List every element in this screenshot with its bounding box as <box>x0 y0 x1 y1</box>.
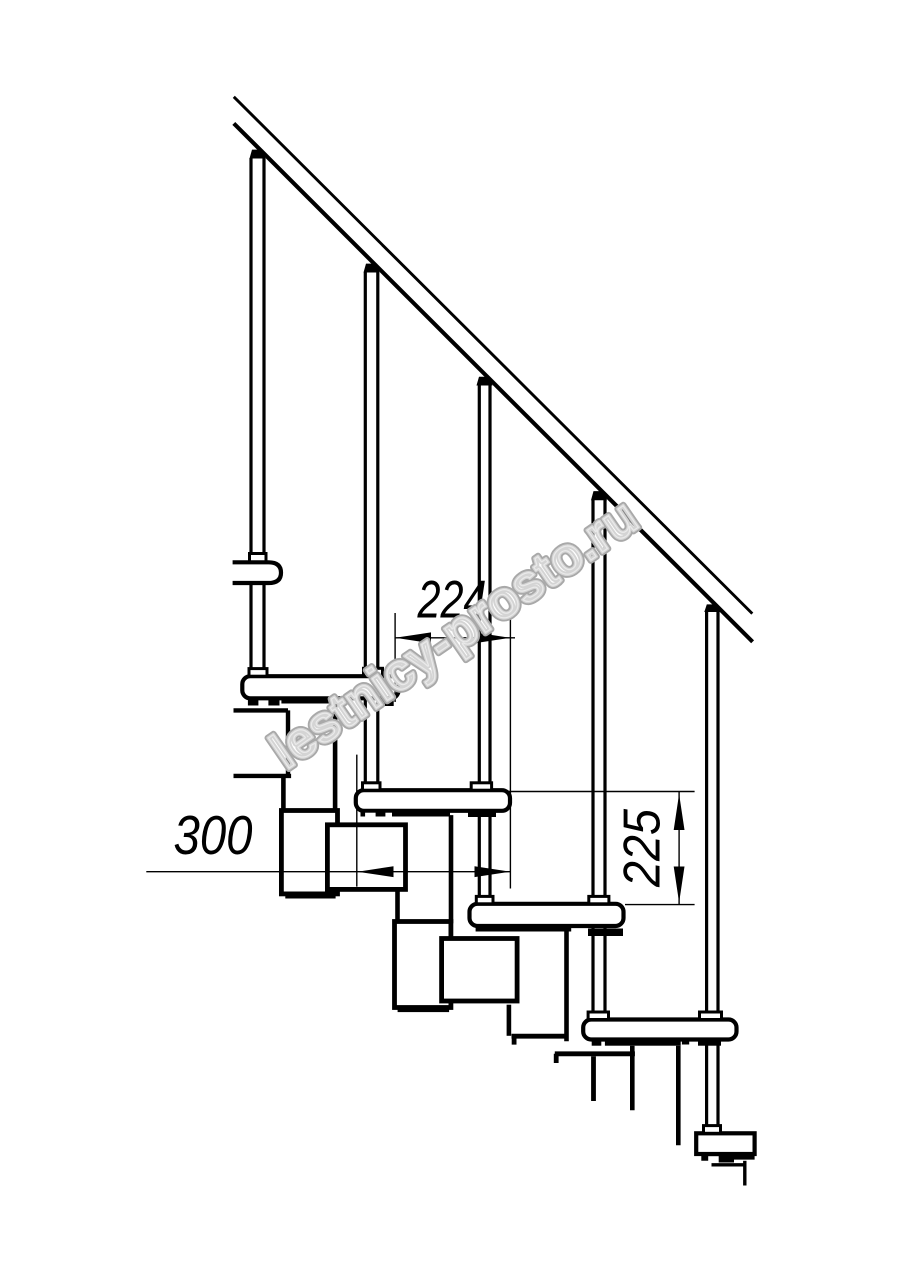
svg-text:300: 300 <box>174 804 253 866</box>
svg-text:225: 225 <box>614 808 672 888</box>
